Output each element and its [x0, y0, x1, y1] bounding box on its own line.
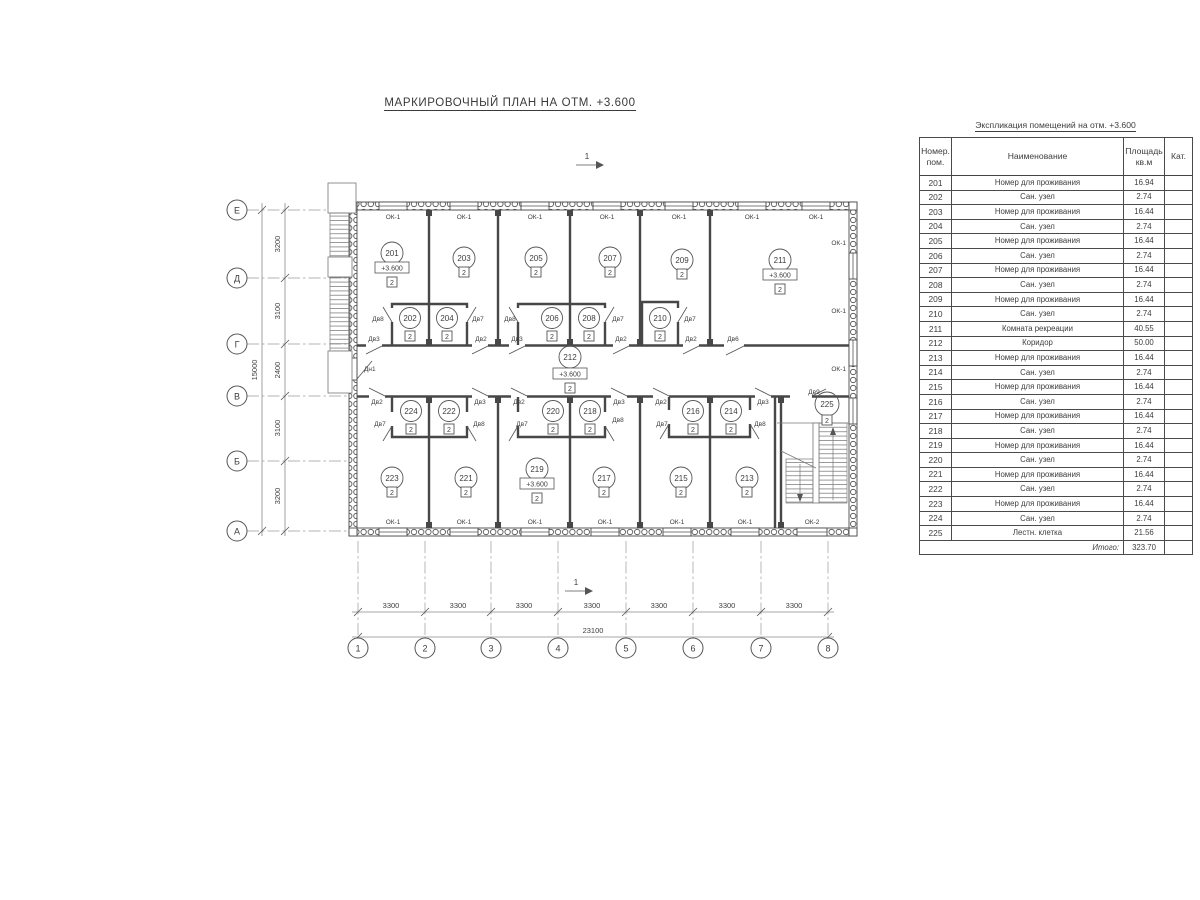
room-label-215: 215 2: [670, 467, 692, 497]
svg-text:204: 204: [440, 314, 454, 323]
svg-text:2: 2: [568, 386, 572, 393]
svg-text:211: 211: [774, 256, 787, 265]
svg-text:3100: 3100: [273, 420, 282, 437]
table-row: 204Сан. узел2.74: [920, 219, 1193, 234]
svg-text:225: 225: [820, 400, 834, 409]
svg-text:2: 2: [462, 270, 466, 277]
svg-text:Дв2: Дв2: [655, 399, 667, 406]
svg-text:Дв8: Дв8: [504, 316, 516, 323]
cell-name: Сан. узел: [952, 219, 1124, 234]
room-label-203: 203 2: [453, 247, 475, 277]
svg-text:224: 224: [404, 407, 418, 416]
header-row: Номер. пом. Наименование Площадь кв.м Ка…: [920, 138, 1193, 176]
svg-text:Дв9: Дв9: [808, 389, 820, 396]
window-label: ОК-1: [745, 214, 760, 221]
svg-text:4: 4: [555, 644, 560, 654]
svg-text:2: 2: [691, 427, 695, 434]
svg-text:215: 215: [674, 474, 688, 483]
cell-area: 21.56: [1124, 526, 1165, 541]
svg-text:2: 2: [680, 272, 684, 279]
svg-text:Дв8: Дв8: [754, 421, 766, 428]
cell-category: [1165, 307, 1193, 322]
svg-text:2: 2: [422, 644, 427, 654]
svg-text:Д: Д: [234, 274, 240, 284]
table-row: 219Номер для проживания16.44: [920, 438, 1193, 453]
cell-area: 2.74: [1124, 365, 1165, 380]
cell-number: 211: [920, 321, 952, 336]
svg-text:3200: 3200: [273, 488, 282, 505]
table-row: 206Сан. узел2.74: [920, 248, 1193, 263]
table-row: 213Номер для проживания16.44: [920, 351, 1193, 366]
cell-category: [1165, 321, 1193, 336]
cell-number: 220: [920, 453, 952, 468]
svg-text:Е: Е: [234, 206, 240, 216]
room-label-222: 222 2: [439, 401, 460, 435]
cell-area: 40.55: [1124, 321, 1165, 336]
cell-category: [1165, 409, 1193, 424]
room-label-212: 212 +3.600 2: [553, 346, 587, 393]
room-label-211: 211 +3.600 2: [763, 249, 797, 294]
svg-text:Б: Б: [234, 457, 240, 467]
window-label: ОК-1: [386, 214, 401, 221]
total-row: Итого: 323.70: [920, 540, 1193, 555]
internal-stair: [775, 397, 849, 528]
window-label: ОК-1: [457, 519, 472, 526]
cell-category: [1165, 526, 1193, 541]
cell-category: [1165, 394, 1193, 409]
cell-name: Сан. узел: [952, 511, 1124, 526]
cell-category: [1165, 365, 1193, 380]
cell-area: 50.00: [1124, 336, 1165, 351]
cell-category: [1165, 467, 1193, 482]
window-label: ОК-1: [386, 519, 401, 526]
svg-text:1: 1: [585, 152, 590, 161]
svg-text:Дв8: Дв8: [473, 421, 485, 428]
cell-area: 2.74: [1124, 278, 1165, 293]
table-row: 217Номер для проживания16.44: [920, 409, 1193, 424]
svg-text:Дв3: Дв3: [511, 336, 523, 343]
svg-text:Дв7: Дв7: [684, 316, 696, 323]
cell-category: [1165, 292, 1193, 307]
cell-category: [1165, 205, 1193, 220]
table-row: 218Сан. узел2.74: [920, 424, 1193, 439]
cell-name: Сан. узел: [952, 482, 1124, 497]
table-row: 210Сан. узел2.74: [920, 307, 1193, 322]
table-row: 220Сан. узел2.74: [920, 453, 1193, 468]
cell-area: 16.44: [1124, 380, 1165, 395]
room-label-224: 224 2: [401, 401, 422, 435]
cell-number: 210: [920, 307, 952, 322]
svg-text:+3.600: +3.600: [769, 273, 791, 280]
cell-number: 207: [920, 263, 952, 278]
svg-text:3300: 3300: [450, 601, 467, 610]
svg-text:203: 203: [457, 254, 471, 263]
svg-text:202: 202: [403, 314, 417, 323]
table-row: 221Номер для проживания16.44: [920, 467, 1193, 482]
svg-text:3300: 3300: [719, 601, 736, 610]
cell-number: 221: [920, 467, 952, 482]
cell-name: Сан. узел: [952, 394, 1124, 409]
svg-text:2: 2: [534, 270, 538, 277]
cell-category: [1165, 380, 1193, 395]
cell-category: [1165, 424, 1193, 439]
svg-text:Дв7: Дв7: [612, 316, 624, 323]
table-row: 222Сан. узел2.74: [920, 482, 1193, 497]
cell-area: 2.74: [1124, 219, 1165, 234]
cell-area: 2.74: [1124, 511, 1165, 526]
cell-area: 16.44: [1124, 234, 1165, 249]
windows: [379, 202, 857, 536]
cell-name: Сан. узел: [952, 190, 1124, 205]
cell-number: 215: [920, 380, 952, 395]
col-header-area: Площадь кв.м: [1124, 138, 1165, 176]
corridor-walls: [349, 346, 849, 397]
svg-text:Дв8: Дв8: [372, 316, 384, 323]
axis-bubbles-bottom: 1 2 3 4 5 6 7 8: [348, 638, 838, 658]
svg-text:2: 2: [551, 427, 555, 434]
table-row: 202Сан. узел2.74: [920, 190, 1193, 205]
window-label: ОК-2: [805, 519, 820, 526]
cell-name: Сан. узел: [952, 365, 1124, 380]
room-label-223: 223 2: [381, 467, 403, 497]
svg-text:2: 2: [409, 427, 413, 434]
table-row: 225Лестн. клетка21.56: [920, 526, 1193, 541]
svg-text:2: 2: [729, 427, 733, 434]
cell-area: 2.74: [1124, 453, 1165, 468]
explication-table: Номер. пом. Наименование Площадь кв.м Ка…: [919, 137, 1193, 555]
svg-text:3300: 3300: [651, 601, 668, 610]
cell-name: Сан. узел: [952, 307, 1124, 322]
wall-right: [849, 202, 857, 536]
cell-category: [1165, 351, 1193, 366]
table-row: 211Комната рекреации40.55: [920, 321, 1193, 336]
window-label: ОК-1: [670, 519, 685, 526]
cell-name: Сан. узел: [952, 453, 1124, 468]
cell-area: 16.44: [1124, 438, 1165, 453]
svg-text:2: 2: [587, 334, 591, 341]
room-label-216: 216 2: [683, 401, 704, 435]
room-label-214: 214 2: [721, 401, 742, 435]
cell-number: 209: [920, 292, 952, 307]
total-label: Итого:: [920, 540, 1124, 555]
svg-text:2: 2: [464, 490, 468, 497]
svg-text:Дв7: Дв7: [374, 421, 386, 428]
cell-category: [1165, 234, 1193, 249]
cell-area: 16.44: [1124, 205, 1165, 220]
svg-text:7: 7: [758, 644, 763, 654]
cell-number: 222: [920, 482, 952, 497]
table-row: 212Коридор50.00: [920, 336, 1193, 351]
svg-text:+3.600: +3.600: [381, 266, 403, 273]
cell-number: 216: [920, 394, 952, 409]
cell-number: 204: [920, 219, 952, 234]
cell-area: 2.74: [1124, 482, 1165, 497]
svg-text:2: 2: [588, 427, 592, 434]
svg-text:Г: Г: [235, 340, 240, 350]
total-category: [1165, 540, 1193, 555]
svg-text:А: А: [234, 527, 240, 537]
table-row: 205Номер для проживания16.44: [920, 234, 1193, 249]
cell-category: [1165, 278, 1193, 293]
room-label-221: 221 2: [455, 467, 477, 497]
table-row: 201Номер для проживания16.94: [920, 176, 1193, 191]
cell-name: Номер для проживания: [952, 263, 1124, 278]
svg-text:2: 2: [390, 280, 394, 287]
section-mark-bottom: 1: [565, 578, 593, 595]
cell-area: 16.44: [1124, 351, 1165, 366]
section-mark-top: 1: [576, 152, 604, 169]
svg-text:2: 2: [778, 287, 782, 294]
cell-number: 224: [920, 511, 952, 526]
cell-name: Сан. узел: [952, 424, 1124, 439]
svg-text:2: 2: [608, 270, 612, 277]
room-label-218: 218 2: [580, 401, 601, 435]
room-label-210: 210 2: [650, 308, 671, 342]
cell-name: Номер для проживания: [952, 205, 1124, 220]
table-row: 214Сан. узел2.74: [920, 365, 1193, 380]
cell-name: Коридор: [952, 336, 1124, 351]
door-leaves-bottom: [369, 388, 826, 396]
cell-name: Номер для проживания: [952, 438, 1124, 453]
cell-area: 2.74: [1124, 307, 1165, 322]
svg-text:Дв2: Дв2: [685, 336, 697, 343]
cell-category: [1165, 248, 1193, 263]
cell-category: [1165, 482, 1193, 497]
svg-text:Дв3: Дв3: [368, 336, 380, 343]
svg-text:223: 223: [385, 474, 399, 483]
room-label-213: 213 2: [736, 467, 758, 497]
window-label: ОК-1: [831, 366, 846, 373]
cell-name: Лестн. клетка: [952, 526, 1124, 541]
svg-text:207: 207: [603, 254, 617, 263]
window-label: ОК-1: [831, 240, 846, 247]
window-label: ОК-1: [457, 214, 472, 221]
cell-name: Сан. узел: [952, 278, 1124, 293]
svg-text:2: 2: [658, 334, 662, 341]
cell-number: 212: [920, 336, 952, 351]
cell-name: Сан. узел: [952, 248, 1124, 263]
svg-text:Дв2: Дв2: [475, 336, 487, 343]
svg-text:212: 212: [563, 353, 577, 362]
svg-text:Дв3: Дв3: [757, 399, 769, 406]
room-label-202: 202 2: [400, 308, 421, 342]
axis-bubbles-left: Е Д Г В Б А: [227, 200, 247, 541]
svg-text:Дв8: Дв8: [612, 417, 624, 424]
cell-name: Номер для проживания: [952, 176, 1124, 191]
svg-text:208: 208: [582, 314, 596, 323]
svg-text:3: 3: [488, 644, 493, 654]
table-row: 215Номер для проживания16.44: [920, 380, 1193, 395]
cell-name: Номер для проживания: [952, 292, 1124, 307]
room-label-201: 201 +3.600 2: [375, 242, 409, 287]
room-label-209: 209 2: [671, 249, 693, 279]
cell-area: 2.74: [1124, 394, 1165, 409]
svg-text:1: 1: [355, 644, 360, 654]
cell-category: [1165, 336, 1193, 351]
cell-name: Номер для проживания: [952, 234, 1124, 249]
cell-area: 16.44: [1124, 467, 1165, 482]
table-row: 208Сан. узел2.74: [920, 278, 1193, 293]
svg-text:3300: 3300: [516, 601, 533, 610]
cell-number: 225: [920, 526, 952, 541]
room-label-217: 217 2: [593, 467, 615, 497]
cell-number: 205: [920, 234, 952, 249]
window-label: ОК-1: [831, 308, 846, 315]
table-row: 203Номер для проживания16.44: [920, 205, 1193, 220]
svg-text:218: 218: [583, 407, 597, 416]
cell-category: [1165, 453, 1193, 468]
svg-text:Дв2: Дв2: [371, 399, 383, 406]
svg-text:2: 2: [550, 334, 554, 341]
cell-number: 214: [920, 365, 952, 380]
svg-text:Дн1: Дн1: [364, 366, 376, 373]
svg-text:2: 2: [679, 490, 683, 497]
col-header-category: Кат.: [1165, 138, 1193, 176]
cell-name: Номер для проживания: [952, 351, 1124, 366]
window-label: ОК-1: [809, 214, 824, 221]
window-label: ОК-1: [528, 519, 543, 526]
cell-area: 16.44: [1124, 409, 1165, 424]
svg-text:201: 201: [385, 249, 399, 258]
cell-name: Номер для проживания: [952, 497, 1124, 512]
cell-category: [1165, 263, 1193, 278]
svg-text:2: 2: [408, 334, 412, 341]
door-leaves-top: [366, 346, 744, 355]
room-label-220: 220 2: [543, 401, 564, 435]
table-row: 209Номер для проживания16.44: [920, 292, 1193, 307]
window-label: ОК-1: [672, 214, 687, 221]
explication-caption: Экспликация помещений на отм. +3.600: [919, 120, 1192, 130]
svg-text:2: 2: [825, 418, 829, 425]
room-label-206: 206 2: [542, 308, 563, 342]
svg-text:3300: 3300: [584, 601, 601, 610]
svg-text:23100: 23100: [583, 626, 604, 635]
window-label: ОК-1: [738, 519, 753, 526]
table-row: 224Сан. узел2.74: [920, 511, 1193, 526]
svg-text:Дв7: Дв7: [472, 316, 484, 323]
cell-name: Комната рекреации: [952, 321, 1124, 336]
svg-text:2: 2: [745, 490, 749, 497]
dimensions-bottom: 3300 3300 3300 3300 3300 3300 3300 23100: [352, 601, 834, 641]
svg-text:3200: 3200: [273, 236, 282, 253]
cell-number: 217: [920, 409, 952, 424]
cell-number: 203: [920, 205, 952, 220]
col-header-name: Наименование: [952, 138, 1124, 176]
cell-category: [1165, 176, 1193, 191]
explication: Экспликация помещений на отм. +3.600 Ном…: [919, 120, 1192, 555]
cell-number: 219: [920, 438, 952, 453]
cell-number: 213: [920, 351, 952, 366]
room-label-204: 204 2: [437, 308, 458, 342]
svg-text:2400: 2400: [273, 362, 282, 379]
svg-text:210: 210: [653, 314, 667, 323]
table-row: 223Номер для проживания16.44: [920, 497, 1193, 512]
cell-number: 208: [920, 278, 952, 293]
cell-category: [1165, 190, 1193, 205]
svg-text:2: 2: [390, 490, 394, 497]
cell-number: 218: [920, 424, 952, 439]
window-label: ОК-1: [598, 519, 613, 526]
svg-text:220: 220: [546, 407, 560, 416]
svg-text:Дв2: Дв2: [615, 336, 627, 343]
svg-text:15000: 15000: [250, 360, 259, 381]
cell-category: [1165, 497, 1193, 512]
svg-text:Дв2: Дв2: [513, 399, 525, 406]
svg-text:217: 217: [597, 474, 611, 483]
svg-text:2: 2: [447, 427, 451, 434]
svg-text:219: 219: [530, 465, 544, 474]
cell-area: 2.74: [1124, 248, 1165, 263]
cell-area: 16.44: [1124, 263, 1165, 278]
cell-category: [1165, 438, 1193, 453]
table-row: 207Номер для проживания16.44: [920, 263, 1193, 278]
svg-text:221: 221: [459, 474, 473, 483]
svg-text:209: 209: [675, 256, 689, 265]
svg-text:216: 216: [686, 407, 700, 416]
svg-text:Дв7: Дв7: [516, 421, 528, 428]
svg-text:В: В: [234, 392, 240, 402]
svg-text:206: 206: [545, 314, 559, 323]
svg-text:+3.600: +3.600: [526, 482, 548, 489]
svg-text:6: 6: [690, 644, 695, 654]
window-label: ОК-1: [528, 214, 543, 221]
svg-text:214: 214: [724, 407, 738, 416]
cell-name: Номер для проживания: [952, 409, 1124, 424]
room-label-205: 205 2: [525, 247, 547, 277]
svg-text:3300: 3300: [383, 601, 400, 610]
drawing-sheet: МАРКИРОВОЧНЫЙ ПЛАН НА ОТМ. +3.600: [0, 0, 1200, 900]
svg-text:213: 213: [740, 474, 754, 483]
cell-area: 2.74: [1124, 190, 1165, 205]
svg-text:3100: 3100: [273, 303, 282, 320]
cell-area: 2.74: [1124, 424, 1165, 439]
cell-number: 223: [920, 497, 952, 512]
svg-text:5: 5: [623, 644, 628, 654]
room-label-207: 207 2: [599, 247, 621, 277]
total-area: 323.70: [1124, 540, 1165, 555]
cell-area: 16.94: [1124, 176, 1165, 191]
cell-name: Номер для проживания: [952, 467, 1124, 482]
svg-text:+3.600: +3.600: [559, 372, 581, 379]
room-labels: 201 +3.600 2 203 2 205 2 207 2 209 2: [375, 242, 839, 503]
svg-text:222: 222: [442, 407, 456, 416]
svg-text:2: 2: [535, 496, 539, 503]
svg-text:Дв6: Дв6: [727, 336, 739, 343]
cell-area: 16.44: [1124, 497, 1165, 512]
cell-category: [1165, 219, 1193, 234]
room-label-208: 208 2: [579, 308, 600, 342]
window-label: ОК-1: [600, 214, 615, 221]
cell-area: 16.44: [1124, 292, 1165, 307]
svg-text:Дв7: Дв7: [656, 421, 668, 428]
svg-text:2: 2: [445, 334, 449, 341]
svg-text:1: 1: [574, 578, 579, 587]
dimensions-left: 3200 3100 2400 3100 3200 15000: [250, 203, 289, 536]
cell-name: Номер для проживания: [952, 380, 1124, 395]
svg-text:205: 205: [529, 254, 543, 263]
cell-category: [1165, 511, 1193, 526]
svg-text:3300: 3300: [786, 601, 803, 610]
svg-text:Дв3: Дв3: [613, 399, 625, 406]
svg-text:8: 8: [825, 644, 830, 654]
col-header-number: Номер. пом.: [920, 138, 952, 176]
svg-text:2: 2: [602, 490, 606, 497]
cell-number: 206: [920, 248, 952, 263]
cell-number: 201: [920, 176, 952, 191]
svg-text:Дв3: Дв3: [474, 399, 486, 406]
table-row: 216Сан. узел2.74: [920, 394, 1193, 409]
cell-number: 202: [920, 190, 952, 205]
